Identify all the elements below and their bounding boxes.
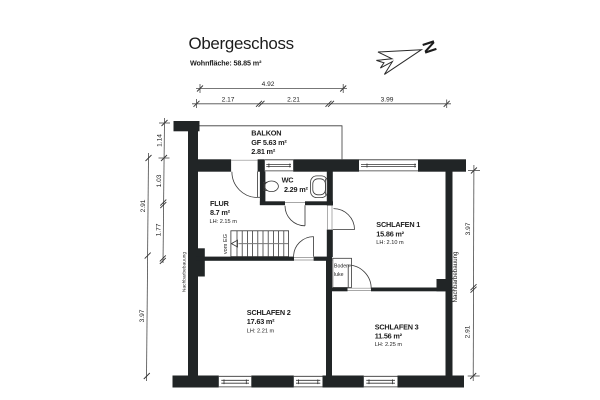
svg-text:4.92: 4.92 [262,81,275,88]
svg-text:Wohnfläche: 58.85 m²: Wohnfläche: 58.85 m² [190,59,262,68]
svg-text:vom EG: vom EG [223,234,229,254]
svg-text:LH: 2.21 m: LH: 2.21 m [247,329,275,335]
svg-text:2.21: 2.21 [287,96,300,103]
svg-text:SCHLAFEN 1: SCHLAFEN 1 [376,220,420,229]
svg-text:Nachbarbebauung: Nachbarbebauung [452,251,459,302]
svg-text:SCHLAFEN 3: SCHLAFEN 3 [375,323,419,332]
svg-text:11.56 m²: 11.56 m² [375,331,403,340]
svg-text:2.91: 2.91 [464,325,471,338]
svg-text:1.03: 1.03 [156,174,163,187]
svg-text:8.7 m²: 8.7 m² [210,208,231,217]
svg-text:LH: 2.15 m: LH: 2.15 m [210,219,238,225]
svg-text:2.17: 2.17 [222,96,235,103]
svg-text:luke: luke [334,272,344,278]
svg-text:15.86 m²: 15.86 m² [376,229,404,238]
svg-text:GF 5.63 m²: GF 5.63 m² [251,138,287,147]
svg-text:3.97: 3.97 [139,309,146,322]
svg-text:SCHLAFEN 2: SCHLAFEN 2 [247,308,291,317]
svg-text:LH: 2.10 m: LH: 2.10 m [376,240,404,246]
svg-text:WC: WC [282,176,295,185]
svg-text:Nachbarbebauung: Nachbarbebauung [182,252,188,293]
svg-text:BALKON: BALKON [251,129,281,138]
svg-text:1.77: 1.77 [156,223,163,236]
svg-text:LH: 2.25 m: LH: 2.25 m [375,342,403,348]
svg-text:17.63 m²: 17.63 m² [247,317,275,326]
svg-text:1.14: 1.14 [157,134,164,147]
svg-text:3.99: 3.99 [381,96,394,103]
svg-text:FLUR: FLUR [210,199,230,208]
svg-text:2.91: 2.91 [140,199,147,212]
svg-text:Obergeschoss: Obergeschoss [189,34,294,53]
svg-text:2.29 m²: 2.29 m² [284,185,309,194]
svg-text:2.81 m²: 2.81 m² [251,147,276,156]
svg-text:3.97: 3.97 [465,222,472,235]
